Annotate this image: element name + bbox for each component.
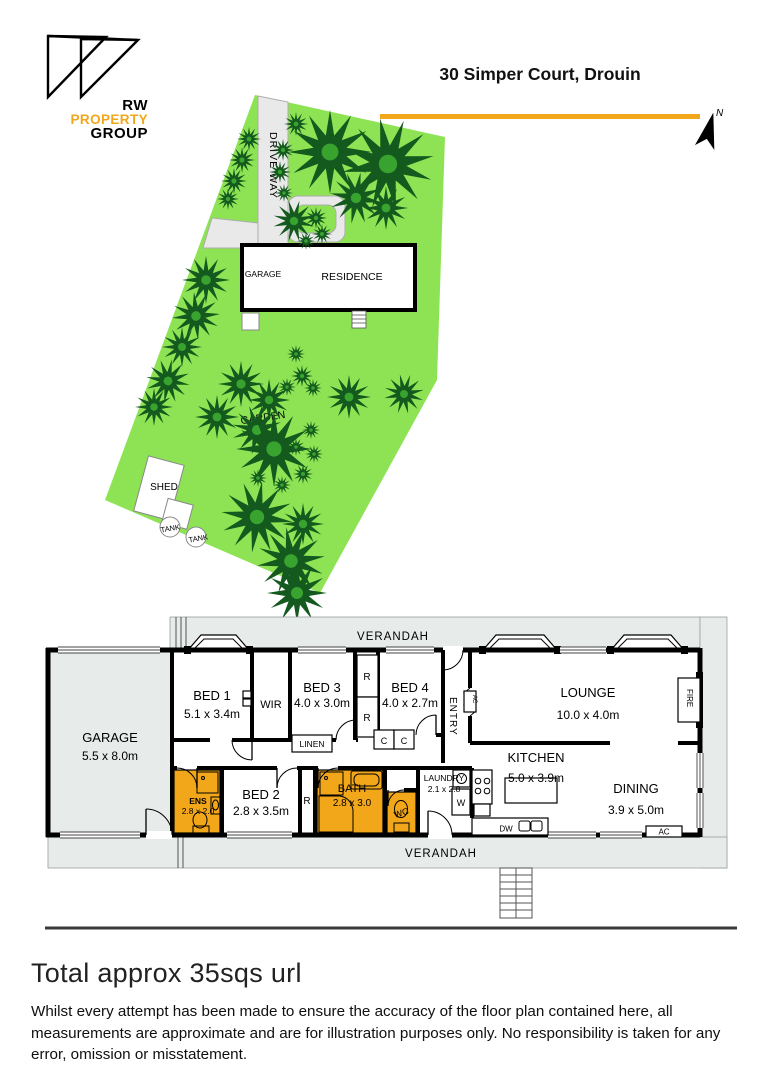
dining-label: DINING bbox=[613, 781, 659, 796]
kitchen-dims: 5.0 x 3.9m bbox=[508, 771, 564, 785]
cupboard-label: C bbox=[401, 736, 408, 746]
floorplan-flyer: RW PROPERTY GROUP 30 Simper Court, Droui… bbox=[0, 0, 764, 1080]
cupboard-label: C bbox=[381, 736, 388, 746]
total-area-text: Total approx 35sqs url bbox=[31, 958, 302, 989]
lounge-dims: 10.0 x 4.0m bbox=[557, 708, 620, 722]
ens-label: ENS bbox=[189, 796, 207, 806]
robe-label: R bbox=[363, 672, 370, 683]
washer-label: W bbox=[457, 798, 466, 808]
ac-label: AC bbox=[658, 828, 669, 837]
bed2-dims: 2.8 x 3.5m bbox=[233, 804, 289, 818]
verandah-bottom bbox=[48, 837, 727, 868]
floor-plan: VERANDAH VERANDAH bbox=[0, 0, 764, 1080]
steps bbox=[500, 868, 532, 918]
verandah-right bbox=[700, 617, 727, 868]
disclaimer-text: Whilst every attempt has been made to en… bbox=[31, 1001, 745, 1066]
bed4-dims: 4.0 x 2.7m bbox=[382, 696, 438, 710]
dishwasher-label: DW bbox=[499, 825, 513, 834]
bed1-label: BED 1 bbox=[193, 688, 231, 703]
garage-label: GARAGE bbox=[82, 730, 138, 745]
verandah-bottom-label: VERANDAH bbox=[405, 848, 477, 860]
laundry-dims: 2.1 x 2.8 bbox=[428, 784, 461, 794]
linen-label: LINEN bbox=[299, 739, 324, 749]
bed4-label: BED 4 bbox=[391, 680, 429, 695]
entry-ac-label: AC bbox=[471, 695, 477, 704]
bed3-label: BED 3 bbox=[303, 680, 341, 695]
kitchen-label: KITCHEN bbox=[507, 750, 564, 765]
dining-dims: 3.9 x 5.0m bbox=[608, 803, 664, 817]
robe-label: R bbox=[303, 796, 310, 807]
bed1-dims: 5.1 x 3.4m bbox=[184, 707, 240, 721]
bath-label: BATH bbox=[338, 783, 367, 795]
fire-label: FIRE bbox=[685, 689, 694, 707]
wir-label: WIR bbox=[260, 699, 281, 711]
entry-label: ENTRY bbox=[447, 697, 458, 736]
bath-dims: 2.8 x 3.0 bbox=[333, 798, 372, 809]
garage-dims: 5.5 x 8.0m bbox=[82, 749, 138, 763]
verandah-top-label: VERANDAH bbox=[357, 631, 429, 643]
laundry-label: LAUNDRY bbox=[424, 773, 465, 783]
ens-dims: 2.8 x 2.0 bbox=[182, 806, 215, 816]
lounge-label: LOUNGE bbox=[561, 685, 616, 700]
bed2-label: BED 2 bbox=[242, 787, 280, 802]
bed3-dims: 4.0 x 3.0m bbox=[294, 696, 350, 710]
robe-label: R bbox=[363, 713, 370, 724]
